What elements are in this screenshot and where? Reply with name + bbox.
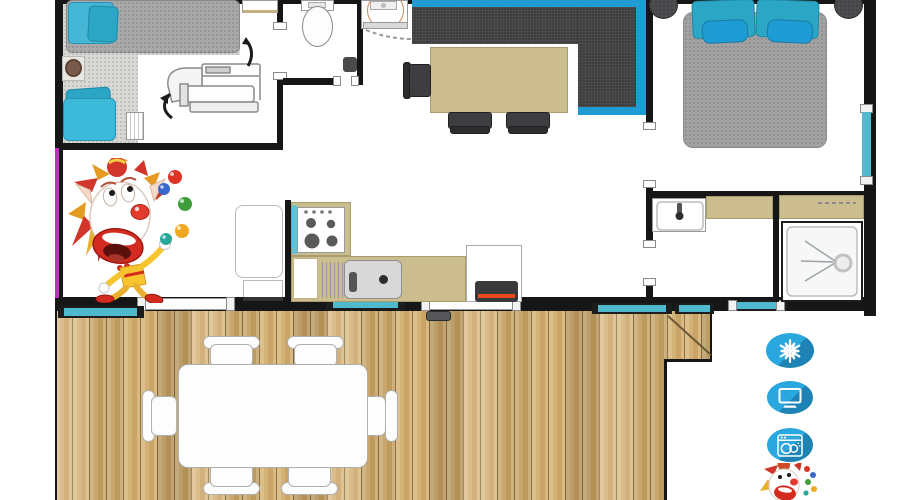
sofa-back-trim xyxy=(636,0,646,115)
window-bathroom xyxy=(598,305,666,312)
sink-faucet xyxy=(349,272,357,292)
kitchen-cabinet-door xyxy=(293,258,318,299)
door-jamb xyxy=(643,180,656,188)
window-cap xyxy=(728,300,737,311)
tv-button[interactable] xyxy=(767,381,813,414)
towel-rail xyxy=(818,202,856,204)
deck-chair xyxy=(151,396,177,436)
deck-notch-edge xyxy=(664,359,667,500)
kids-bed-2 xyxy=(63,98,116,141)
sink-drain xyxy=(379,275,388,284)
bathroom-counter xyxy=(779,195,864,219)
gas-heater xyxy=(475,281,518,302)
wardrobe xyxy=(242,0,278,13)
dining-chair xyxy=(409,64,431,97)
clown-icon[interactable] xyxy=(760,463,820,500)
door-jamb xyxy=(333,76,341,86)
door-jamb xyxy=(643,122,656,130)
air-conditioning-button[interactable] xyxy=(766,333,814,368)
wc-door-stop xyxy=(343,57,357,72)
door-jamb xyxy=(226,297,235,311)
heater-flame-strip xyxy=(478,294,515,298)
door-jamb xyxy=(643,278,656,286)
window-shower-room xyxy=(737,302,777,309)
deck-edge-left xyxy=(55,308,57,500)
plant-pot xyxy=(65,59,82,77)
window-living xyxy=(333,301,398,308)
dining-chair-back xyxy=(508,126,548,134)
bathroom-counter xyxy=(706,196,773,219)
snowflake-icon xyxy=(777,338,803,364)
shower[interactable] xyxy=(781,221,863,302)
nose-highlight xyxy=(135,207,139,211)
sink-drainboard xyxy=(319,262,344,298)
wall-master-bedroom-left xyxy=(646,0,653,128)
nightstand xyxy=(834,0,863,19)
dining-chair-back xyxy=(450,126,490,134)
kids-bed-pillow xyxy=(87,5,119,43)
deck-corner-shading xyxy=(660,308,715,363)
wall-wc-bottom xyxy=(283,78,337,85)
door-jamb xyxy=(273,22,287,30)
cabinet-base xyxy=(243,297,283,301)
window-bathroom-2 xyxy=(679,305,710,312)
sofa-front-trim xyxy=(578,107,646,115)
bed-pillow xyxy=(766,19,813,44)
gas-hob[interactable] xyxy=(297,207,345,253)
dishwasher-icon xyxy=(775,433,805,458)
shower-tray xyxy=(783,223,861,300)
washbasin xyxy=(653,199,707,233)
clown-mascot xyxy=(68,158,198,303)
tv-icon xyxy=(775,386,805,410)
window-kids-bedroom xyxy=(64,308,137,316)
window-cap xyxy=(860,176,873,185)
toilet-bowl[interactable] xyxy=(302,6,333,47)
clown-nose xyxy=(131,205,149,220)
vanity-faucet xyxy=(381,3,386,8)
dining-table xyxy=(430,47,568,113)
wall-kids-bedroom-bottom xyxy=(62,143,283,150)
door-step-mat xyxy=(426,311,451,321)
floorplan-canvas xyxy=(0,0,900,500)
door-jamb xyxy=(351,76,359,86)
wall-accent-magenta xyxy=(55,148,59,298)
fridge[interactable] xyxy=(235,205,283,278)
deck-chair-back xyxy=(385,390,398,442)
sofa-back-trim xyxy=(412,0,646,7)
bed-pillow xyxy=(701,19,748,44)
dishwasher-button[interactable] xyxy=(767,428,813,462)
deck-dining-table xyxy=(178,364,368,468)
bunk-bed-sketch xyxy=(158,34,278,134)
window-master-bedroom xyxy=(862,112,871,177)
nightstand xyxy=(649,0,678,19)
door-jamb xyxy=(643,240,656,248)
bunk-ladder xyxy=(126,112,144,140)
washbasin-unit[interactable] xyxy=(652,198,706,232)
hob-burners xyxy=(298,208,346,254)
